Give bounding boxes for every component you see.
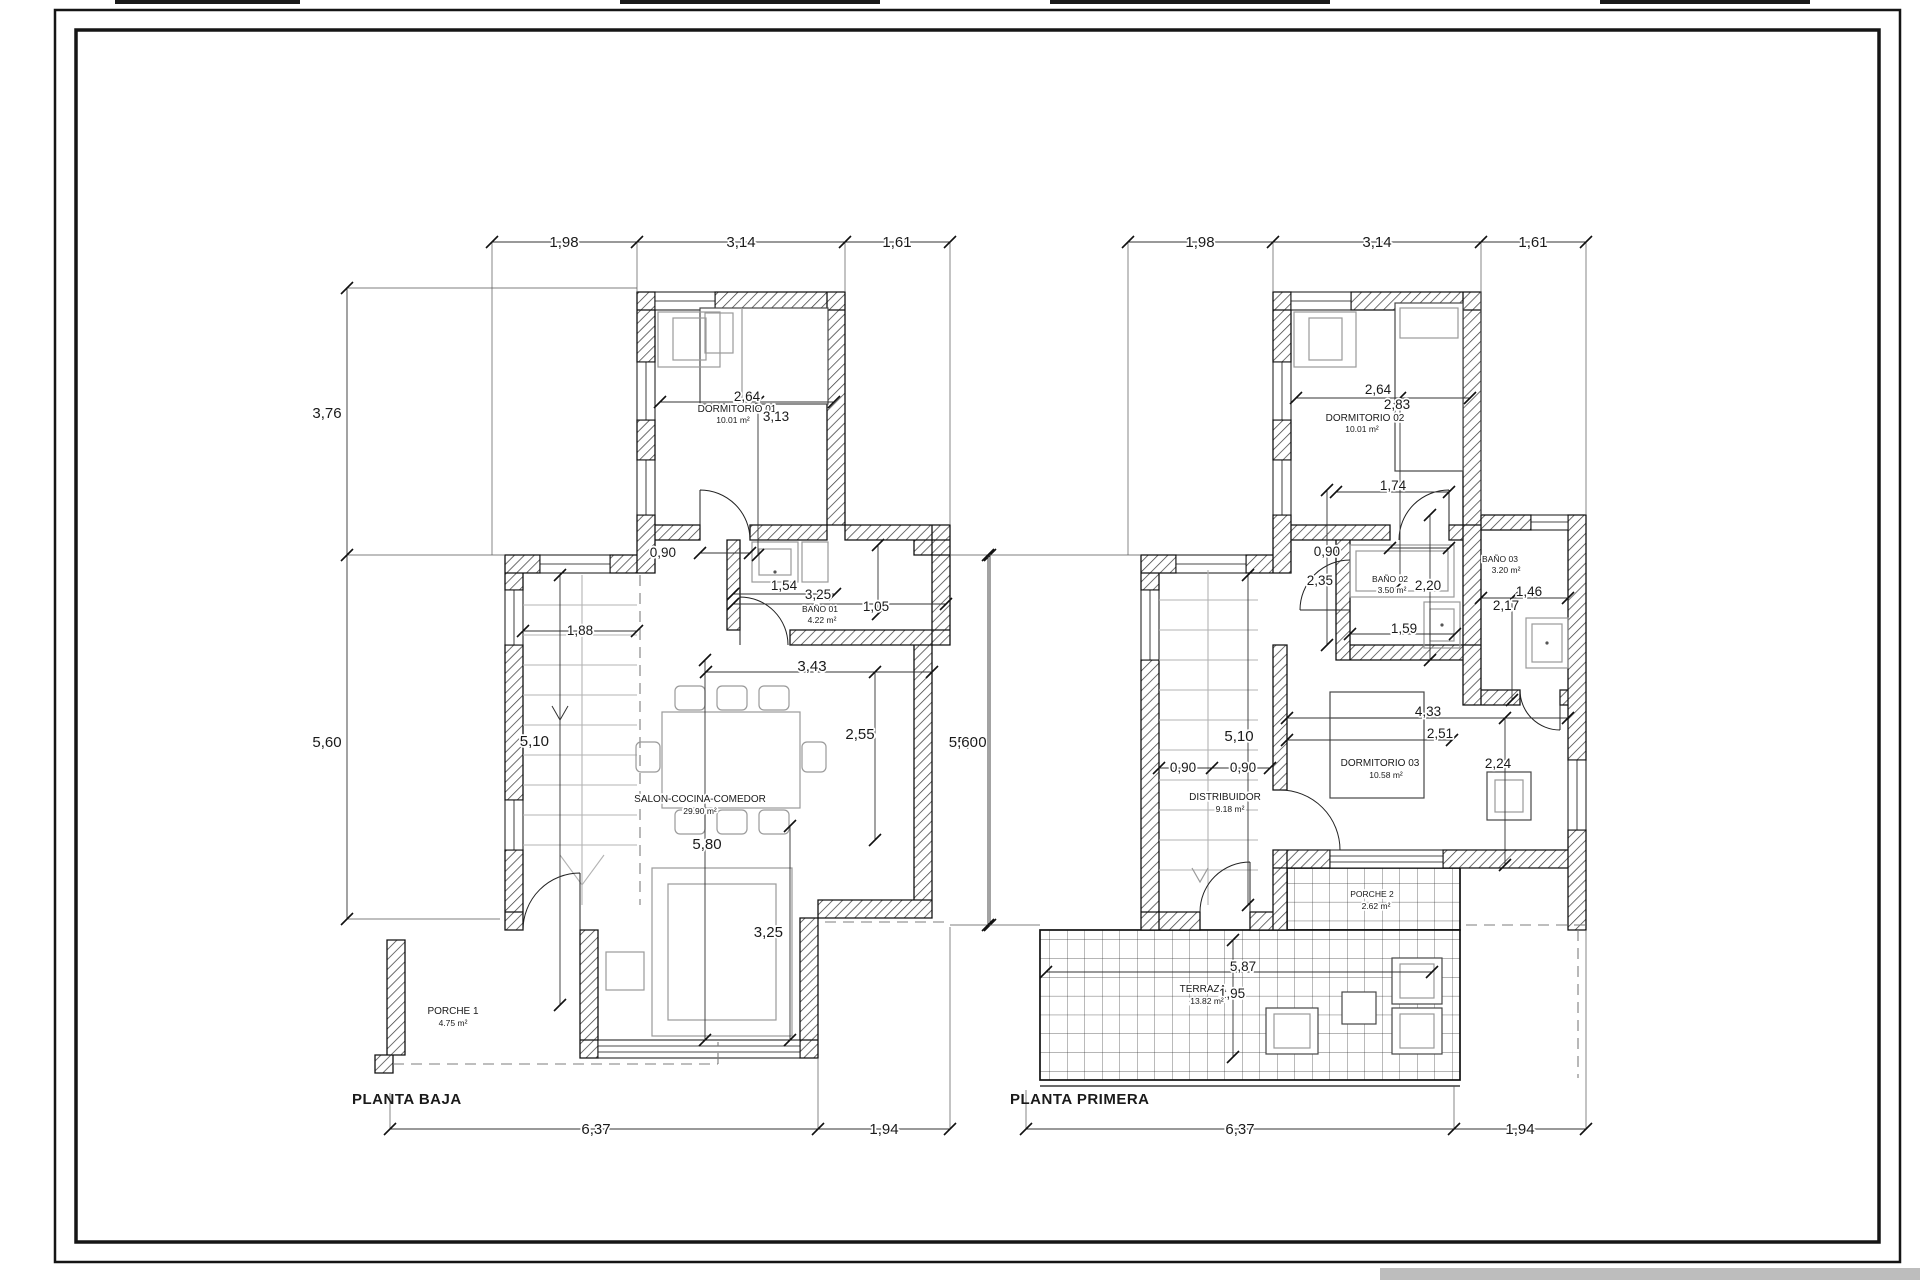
wardrobe [1294, 312, 1356, 367]
sofa [652, 868, 792, 1036]
dim-label: 1,05 [863, 599, 889, 614]
room-area: 10.01 m² [716, 415, 750, 425]
scan-shadow [1380, 1268, 1920, 1280]
bed [700, 308, 828, 404]
porche2-tiles [1287, 868, 1460, 930]
dim-label: 1,61 [882, 234, 911, 251]
outer-border [55, 10, 1900, 1262]
dim-label: 1,98 [549, 234, 578, 251]
room-label: PORCHE 1 [427, 1006, 479, 1017]
dim-label: 1,61 [1518, 234, 1547, 251]
dim-label: 1,74 [1380, 478, 1407, 493]
overhang-dashed-lines [1466, 925, 1586, 1078]
dim-label: 5,10 [520, 733, 549, 750]
dim-label: 0,90 [1314, 544, 1340, 559]
plan-title: PLANTA BAJA [352, 1091, 462, 1108]
room-area: 10.01 m² [1345, 424, 1379, 434]
dim-label: 2,55 [845, 726, 874, 743]
room-area: 3.20 m² [1492, 565, 1521, 575]
sheet-frame [55, 2, 1920, 1280]
dim-label: 3,43 [797, 658, 826, 675]
room-label: SALON-COCINA-COMEDOR [634, 794, 766, 805]
dim-label: 2,20 [1415, 578, 1441, 593]
chairs [636, 686, 826, 834]
dim-label: 3,13 [763, 409, 789, 424]
room-area: 10.58 m² [1369, 770, 1403, 780]
dim-label: 2,24 [1485, 756, 1512, 771]
room-label: DISTRIBUIDOR [1189, 792, 1261, 803]
plan-planta-primera: 1,98 3,14 1,61 6,37 1,94 2,64 2,83 DORMI… [949, 234, 1592, 1138]
dim-label: 5,10 [1224, 728, 1253, 745]
nightstand [1487, 772, 1531, 820]
dim-label: 2,64 [734, 389, 761, 404]
dim-label: 5,87 [1230, 959, 1256, 974]
dim-label: 3,14 [726, 234, 755, 251]
dim-label: 6,37 [581, 1121, 610, 1138]
dim-label: 2,35 [1307, 573, 1333, 588]
dim-label: 5,60 [312, 734, 341, 751]
room-label: PORCHE 2 [1350, 889, 1394, 899]
dim-label: 3,14 [1362, 234, 1391, 251]
dim-label: 3,25 [754, 924, 783, 941]
dim-label: 2,64 [1365, 382, 1392, 397]
dim-label: 1,59 [1391, 621, 1417, 636]
room-area: 13.82 m² [1190, 996, 1224, 1006]
dim-label: 0,90 [1170, 760, 1196, 775]
bed [1330, 692, 1424, 798]
dim-label: 0,90 [650, 545, 676, 560]
walls [375, 292, 950, 1073]
drawing-sheet: 1,98 3,14 1,61 3,76 5,60 5,60 6,37 1,94 … [0, 0, 1920, 1280]
room-label: BAÑO 01 [802, 604, 838, 614]
dim-label: 5,80 [692, 836, 721, 853]
dim-label: 1,46 [1516, 584, 1542, 599]
plan-title: PLANTA PRIMERA [1010, 1091, 1150, 1108]
dim-label: 0,90 [1230, 760, 1256, 775]
terraza-tiles [1040, 930, 1460, 1080]
dim-label: 1,54 [771, 578, 798, 593]
room-label: DORMITORIO 02 [1326, 413, 1405, 424]
dim-label: 2,83 [1384, 397, 1410, 412]
bath-cabinet [802, 542, 828, 582]
dim-label: 3,25 [805, 587, 831, 602]
bed [1395, 303, 1463, 471]
room-label: BAÑO 02 [1372, 574, 1408, 584]
dim-label: 5,60 [949, 734, 978, 751]
dim-label: 4,33 [1415, 704, 1441, 719]
room-area: 3.50 m² [1378, 585, 1407, 595]
dim-label: 2,51 [1427, 726, 1453, 741]
dim-label: 6,37 [1225, 1121, 1254, 1138]
room-label: DORMITORIO 03 [1341, 758, 1420, 769]
dim-label: 1,98 [1185, 234, 1214, 251]
dim-label: 3,76 [312, 405, 341, 422]
dim-label: 2,17 [1493, 598, 1519, 613]
room-label: BAÑO 03 [1482, 554, 1518, 564]
room-area: 4.75 m² [439, 1018, 468, 1028]
room-area: 29.90 m² [683, 806, 717, 816]
room-area: 2.62 m² [1362, 901, 1391, 911]
dim-label: 1,94 [1505, 1121, 1534, 1138]
inner-border [76, 30, 1879, 1242]
room-area: 9.18 m² [1216, 804, 1245, 814]
plan-planta-baja: 1,98 3,14 1,61 3,76 5,60 5,60 6,37 1,94 … [312, 234, 996, 1138]
floor-plan-drawing: 1,98 3,14 1,61 3,76 5,60 5,60 6,37 1,94 … [0, 0, 1920, 1280]
dim-label: 1,88 [567, 623, 593, 638]
side-table [606, 952, 644, 990]
room-area: 4.22 m² [808, 615, 837, 625]
dim-label: 1,94 [869, 1121, 898, 1138]
